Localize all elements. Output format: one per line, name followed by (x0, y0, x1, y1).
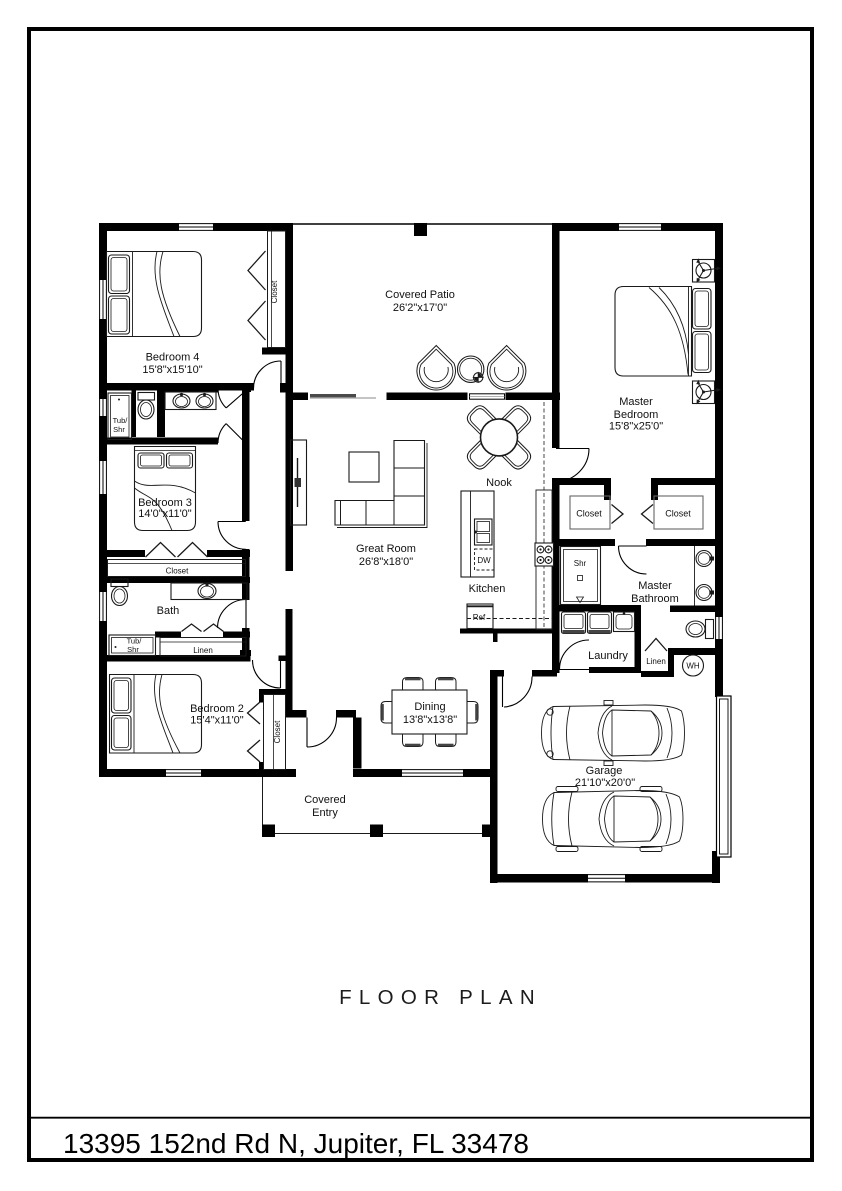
svg-text:Bath: Bath (157, 605, 180, 617)
svg-text:Closet: Closet (166, 567, 189, 576)
svg-text:Closet: Closet (273, 720, 282, 743)
svg-text:Garage: Garage (586, 765, 623, 777)
svg-text:Shr: Shr (113, 425, 125, 434)
svg-text:21'10"x20'0": 21'10"x20'0" (575, 777, 635, 789)
svg-text:Great Room: Great Room (356, 543, 416, 555)
svg-text:Kitchen: Kitchen (469, 583, 506, 595)
svg-text:13395 152nd Rd N, Jupiter, FL: 13395 152nd Rd N, Jupiter, FL 33478 (63, 1128, 529, 1159)
svg-text:Bedroom: Bedroom (614, 409, 659, 421)
svg-text:Ref: Ref (473, 613, 486, 622)
svg-text:Linen: Linen (193, 646, 213, 655)
svg-text:26'2"x17'0": 26'2"x17'0" (393, 302, 447, 314)
svg-text:FLOOR PLAN: FLOOR PLAN (339, 986, 542, 1009)
svg-text:Laundry: Laundry (588, 650, 628, 662)
svg-text:Nook: Nook (486, 477, 512, 489)
svg-text:Entry: Entry (312, 807, 338, 819)
svg-text:Covered: Covered (304, 794, 346, 806)
svg-text:Bathroom: Bathroom (631, 593, 679, 605)
svg-text:Master: Master (619, 396, 653, 408)
svg-text:15'8"x25'0": 15'8"x25'0" (609, 421, 663, 433)
svg-text:26'8"x18'0": 26'8"x18'0" (359, 556, 413, 568)
svg-text:Shr: Shr (127, 645, 139, 654)
svg-text:15'8"x15'10": 15'8"x15'10" (142, 364, 202, 376)
svg-text:DW: DW (477, 556, 491, 565)
svg-text:Closet: Closet (665, 509, 691, 519)
svg-text:13'8"x13'8": 13'8"x13'8" (403, 714, 457, 726)
svg-text:Master: Master (638, 580, 672, 592)
svg-text:Covered Patio: Covered Patio (385, 289, 455, 301)
svg-text:Tub/: Tub/ (113, 416, 129, 425)
svg-text:Dining: Dining (414, 701, 445, 713)
svg-text:Closet: Closet (576, 509, 602, 519)
svg-text:Shr: Shr (574, 559, 587, 568)
svg-text:Linen: Linen (646, 657, 666, 666)
svg-text:15'4"x11'0": 15'4"x11'0" (190, 715, 243, 727)
svg-text:Bedroom 2: Bedroom 2 (190, 703, 244, 715)
svg-text:Closet: Closet (270, 280, 279, 303)
svg-text:14'0"x11'0": 14'0"x11'0" (138, 508, 191, 520)
svg-text:Bedroom 4: Bedroom 4 (146, 352, 200, 364)
svg-text:WH: WH (686, 662, 700, 671)
